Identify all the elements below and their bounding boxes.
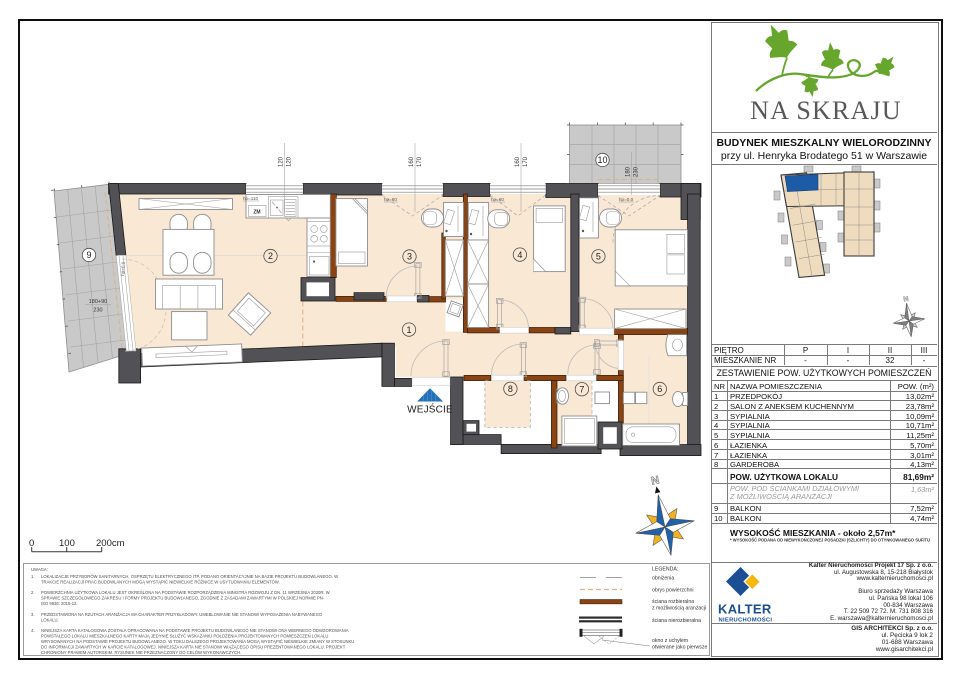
svg-text:okno z uchyłem: okno z uchyłem: [652, 638, 688, 644]
svg-text:200cm: 200cm: [96, 538, 125, 549]
svg-text:obniżenia: obniżenia: [652, 576, 674, 582]
svg-text:NA SKRAJU: NA SKRAJU: [750, 96, 902, 125]
svg-text:hp=0,0: hp=0,0: [619, 197, 634, 202]
svg-text:1: 1: [406, 325, 411, 335]
svg-text:z możliwością aranżacji: z możliwością aranżacji: [652, 606, 706, 612]
svg-text:ściana rozbieralna: ściana rozbieralna: [652, 599, 694, 605]
svg-text:hp=110: hp=110: [243, 196, 259, 201]
svg-text:hp=0,0: hp=0,0: [120, 261, 126, 276]
svg-text:otwierane jako pierwsze: otwierane jako pierwsze: [652, 645, 707, 651]
svg-text:3: 3: [407, 252, 412, 262]
svg-text:5: 5: [596, 252, 601, 262]
svg-text:160: 160: [409, 156, 415, 167]
svg-text:230: 230: [93, 308, 102, 314]
svg-text:4: 4: [517, 250, 522, 260]
svg-text:180: 180: [626, 166, 632, 177]
svg-text:N: N: [903, 296, 909, 304]
svg-text:hp=60: hp=60: [491, 197, 504, 202]
svg-text:180+90: 180+90: [89, 299, 108, 305]
svg-text:170: 170: [417, 156, 423, 167]
svg-text:120: 120: [287, 156, 293, 167]
svg-text:8: 8: [508, 384, 513, 394]
svg-text:9: 9: [86, 250, 91, 260]
svg-text:230: 230: [634, 166, 640, 177]
svg-text:160: 160: [515, 156, 521, 167]
svg-text:N: N: [650, 474, 660, 487]
svg-text:hp=60: hp=60: [384, 197, 397, 202]
svg-text:6: 6: [657, 384, 662, 394]
svg-text:10: 10: [597, 155, 607, 165]
svg-text:ZM: ZM: [253, 210, 260, 216]
svg-text:obrys powierzchni: obrys powierzchni: [652, 588, 694, 594]
svg-text:2: 2: [268, 251, 273, 261]
svg-text:120: 120: [279, 156, 285, 167]
svg-text:170: 170: [523, 156, 529, 167]
svg-text:ściana nierozbieralna: ściana nierozbieralna: [652, 618, 701, 624]
svg-text:7: 7: [579, 384, 584, 394]
svg-text:WEJŚCIE: WEJŚCIE: [407, 403, 453, 416]
svg-text:LEGENDA:: LEGENDA:: [652, 567, 678, 573]
